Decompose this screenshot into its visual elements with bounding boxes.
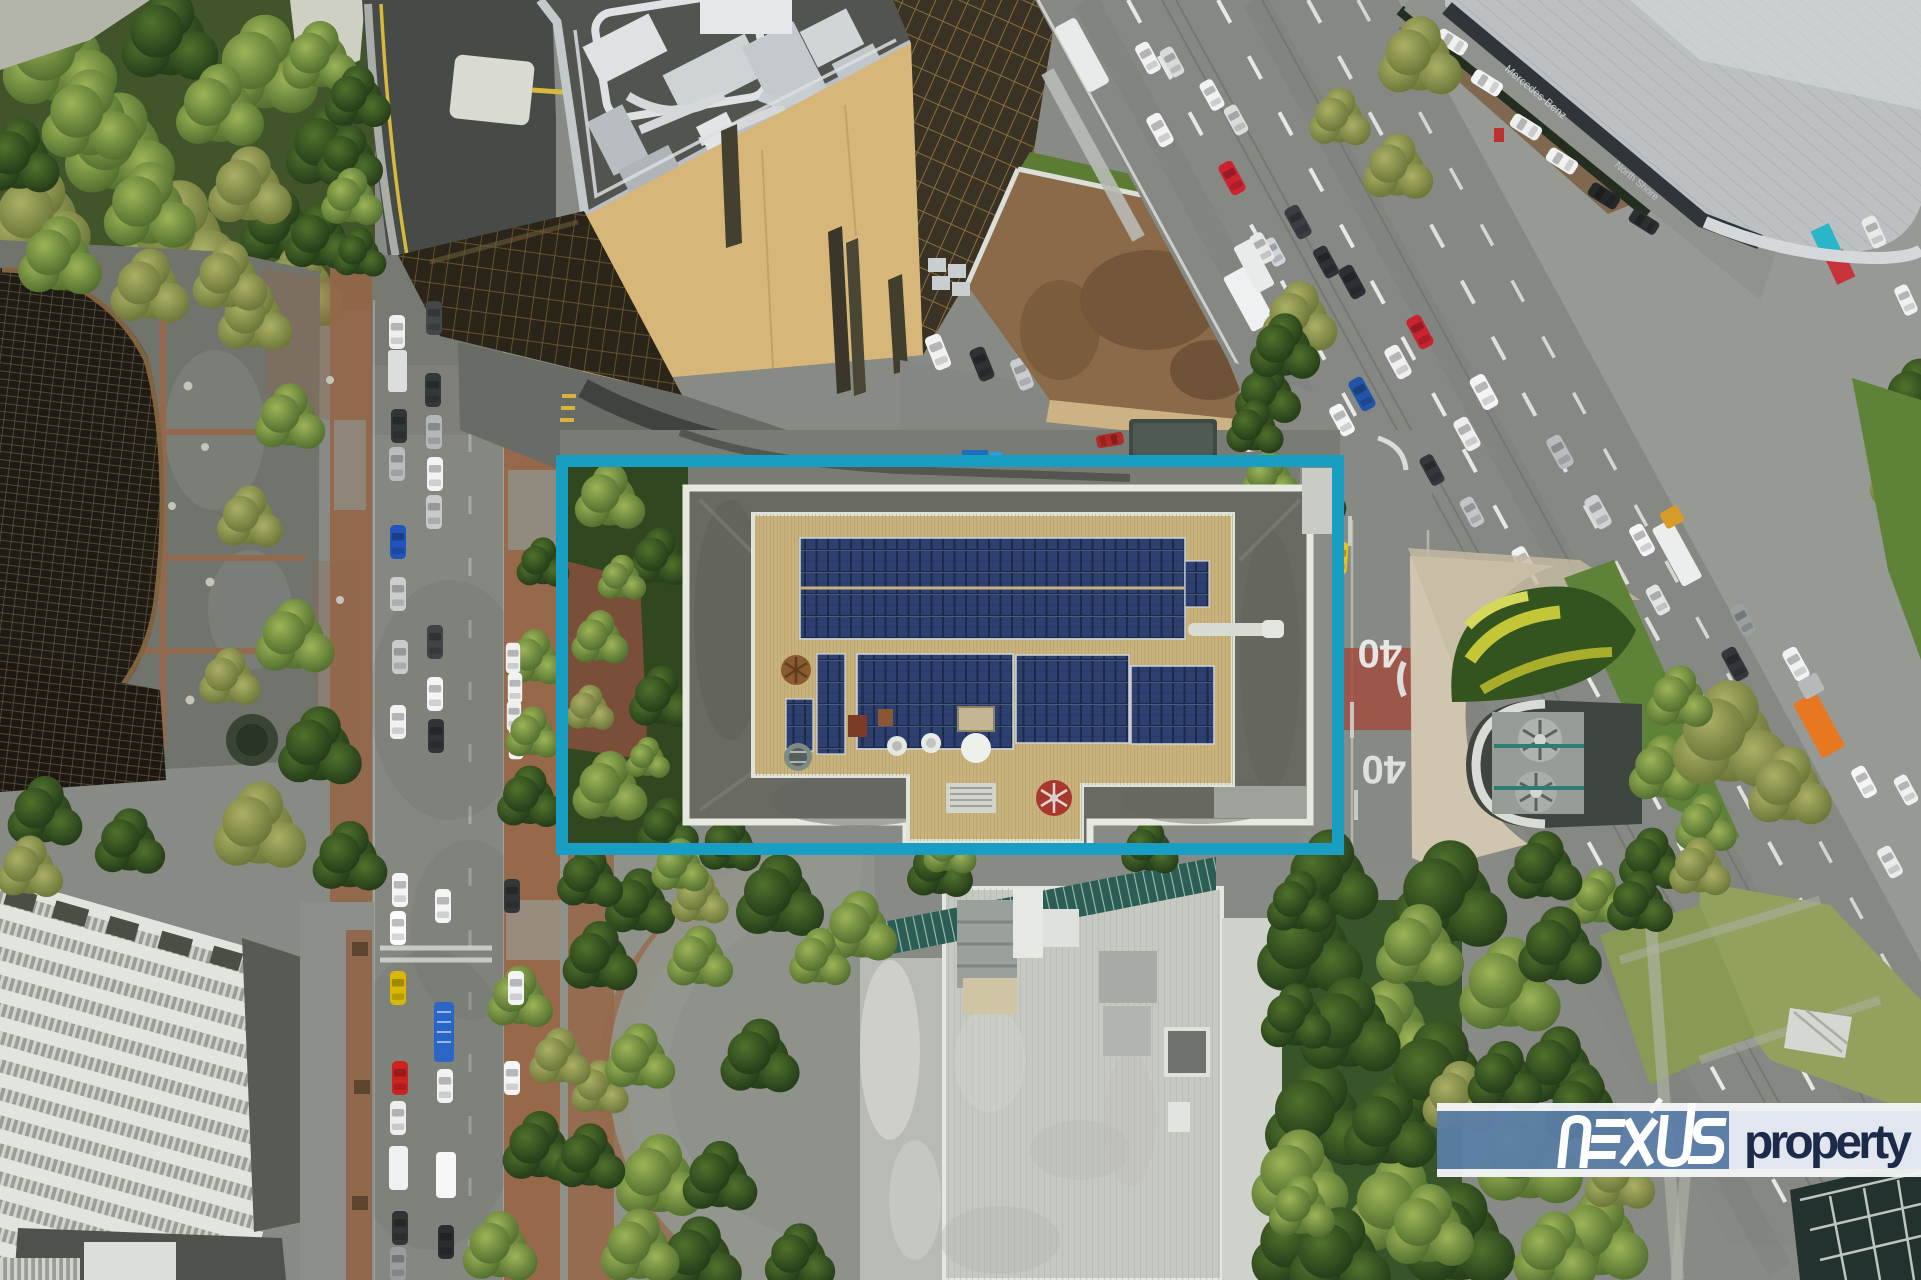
svg-text:40: 40 — [1362, 747, 1407, 791]
svg-text:property: property — [1744, 1116, 1912, 1169]
svg-text:40: 40 — [1358, 631, 1403, 675]
